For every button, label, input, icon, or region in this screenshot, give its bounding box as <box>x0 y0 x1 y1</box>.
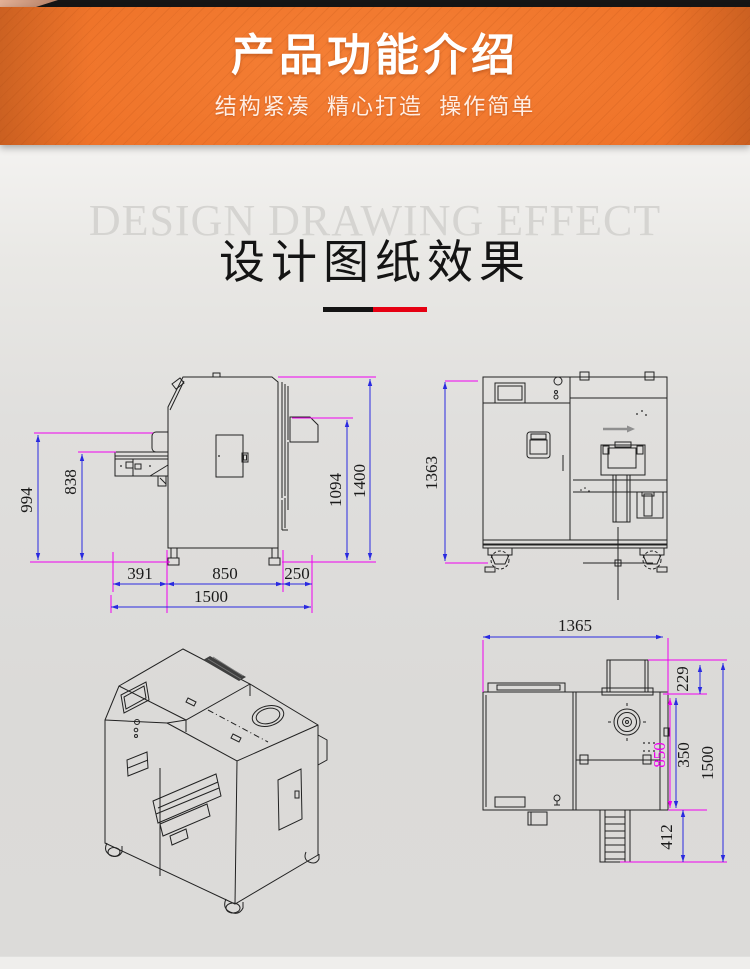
banner-subtitle: 结构紧凑 精心打造 操作简单 <box>0 79 750 121</box>
dim-994: 994 <box>17 487 36 513</box>
dim-arrowhead <box>721 663 725 670</box>
dim-arrowhead <box>674 801 678 808</box>
section-banner: 产品功能介绍 结构紧凑 精心打造 操作简单 <box>0 7 750 145</box>
isometric-view-drawing <box>90 638 335 930</box>
divider-red-segment <box>373 307 427 312</box>
dim-arrowhead <box>80 553 84 560</box>
front-view-drawing: 1363 <box>425 370 725 625</box>
dim-arrowhead <box>681 855 685 862</box>
title-divider <box>323 307 427 312</box>
top-left-photo-wedge <box>0 0 58 7</box>
dim-arrowhead <box>443 554 447 561</box>
direction-arrow-icon <box>603 426 635 433</box>
front-view-dim-lines <box>443 382 447 561</box>
dim-arrowhead <box>368 553 372 560</box>
side-view-dim-lines <box>36 379 372 609</box>
dim-arrowhead <box>721 855 725 862</box>
dim-arrowhead <box>698 687 702 694</box>
section-title: 设计图纸效果 <box>0 238 750 288</box>
dim-229: 229 <box>673 666 692 692</box>
dim-arrowhead <box>111 605 118 609</box>
dim-1365: 1365 <box>558 616 592 635</box>
side-view-drawing: 994 838 1094 1400 391 850 250 1500 <box>20 370 385 620</box>
side-view-machine <box>115 373 318 565</box>
divider-black-segment <box>323 307 373 312</box>
dim-arrowhead <box>345 553 349 560</box>
plan-view-machine <box>483 660 669 862</box>
dim-arrowhead <box>656 635 663 639</box>
dim-1500-plan: 1500 <box>698 746 717 780</box>
dim-350: 350 <box>674 742 693 768</box>
dim-arrowhead <box>160 582 167 586</box>
dim-arrowhead <box>304 605 311 609</box>
dim-1400: 1400 <box>350 464 369 498</box>
top-dark-strip <box>0 0 750 7</box>
dim-arrowhead <box>80 454 84 461</box>
dim-250: 250 <box>284 564 310 583</box>
front-view-extension-lines <box>445 381 488 563</box>
dim-1094: 1094 <box>326 473 345 508</box>
dim-arrowhead <box>345 420 349 427</box>
bottom-section-band <box>0 956 750 969</box>
dim-850-plan: 850 <box>650 742 669 768</box>
iso-vent-grille <box>203 656 246 681</box>
dim-arrowhead <box>681 810 685 817</box>
dim-arrowhead <box>443 382 447 389</box>
iso-machine <box>105 649 327 913</box>
dim-838: 838 <box>61 469 80 495</box>
dim-412: 412 <box>657 824 676 850</box>
dim-391: 391 <box>127 564 153 583</box>
banner-title: 产品功能介绍 <box>0 7 750 79</box>
dim-1500: 1500 <box>194 587 228 606</box>
dim-arrowhead <box>36 553 40 560</box>
dim-arrowhead <box>368 379 372 386</box>
dim-1363: 1363 <box>422 456 441 490</box>
dim-arrowhead <box>113 582 120 586</box>
dim-arrowhead <box>674 698 678 705</box>
dim-arrowhead <box>276 582 283 586</box>
dim-arrowhead <box>167 582 174 586</box>
dim-arrowhead <box>36 435 40 442</box>
dim-arrowhead <box>483 635 490 639</box>
front-view-machine <box>483 372 667 600</box>
plan-view-drawing: 1365 229 850 350 1500 412 <box>455 615 747 875</box>
dim-arrowhead <box>698 665 702 672</box>
dim-850: 850 <box>212 564 238 583</box>
product-detail-page: 产品功能介绍 结构紧凑 精心打造 操作简单 DESIGN DRAWING EFF… <box>0 0 750 969</box>
